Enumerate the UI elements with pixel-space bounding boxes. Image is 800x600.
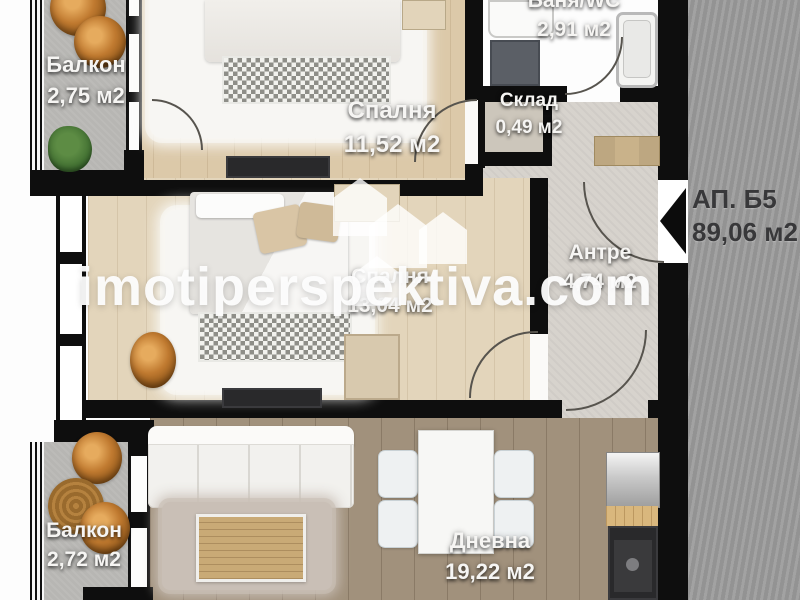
apartment-area: 89,06 м2	[692, 216, 800, 249]
label-balcony-top: Балкон 2,75 м2	[30, 50, 142, 112]
label-balcony-bottom: Балкон 2,72 м2	[28, 516, 140, 575]
label-bathroom: Баня/WC 2,91 м2	[494, 0, 654, 45]
room-area: 0,49 м2	[474, 115, 584, 142]
room-area: 11,52 м2	[292, 128, 492, 162]
room-name: Спалня	[292, 94, 492, 128]
door-arc	[470, 332, 538, 398]
label-living: Дневна 19,22 м2	[408, 526, 572, 588]
apartment-name: АП. Б5	[692, 183, 800, 216]
door-arc	[152, 100, 202, 150]
room-area: 19,22 м2	[408, 557, 572, 588]
room-name: Балкон	[30, 50, 142, 81]
door-arc	[566, 330, 646, 410]
label-apartment: АП. Б5 89,06 м2	[692, 183, 800, 248]
label-storage: Склад 0,49 м2	[474, 88, 584, 141]
floor-plan: Балкон 2,75 м2 Спалня 11,52 м2 Баня/WC 2…	[0, 0, 800, 600]
room-name: Балкон	[28, 516, 140, 545]
room-area: 2,72 м2	[28, 545, 140, 574]
watermark: imotiperspektiva.com	[78, 256, 653, 318]
room-area: 2,75 м2	[30, 81, 142, 112]
label-bedroom-top: Спалня 11,52 м2	[292, 94, 492, 161]
room-area: 2,91 м2	[494, 15, 654, 44]
room-name: Склад	[474, 88, 584, 115]
room-name: Баня/WC	[494, 0, 654, 15]
door-arc	[565, 37, 622, 94]
room-name: Дневна	[408, 526, 572, 557]
